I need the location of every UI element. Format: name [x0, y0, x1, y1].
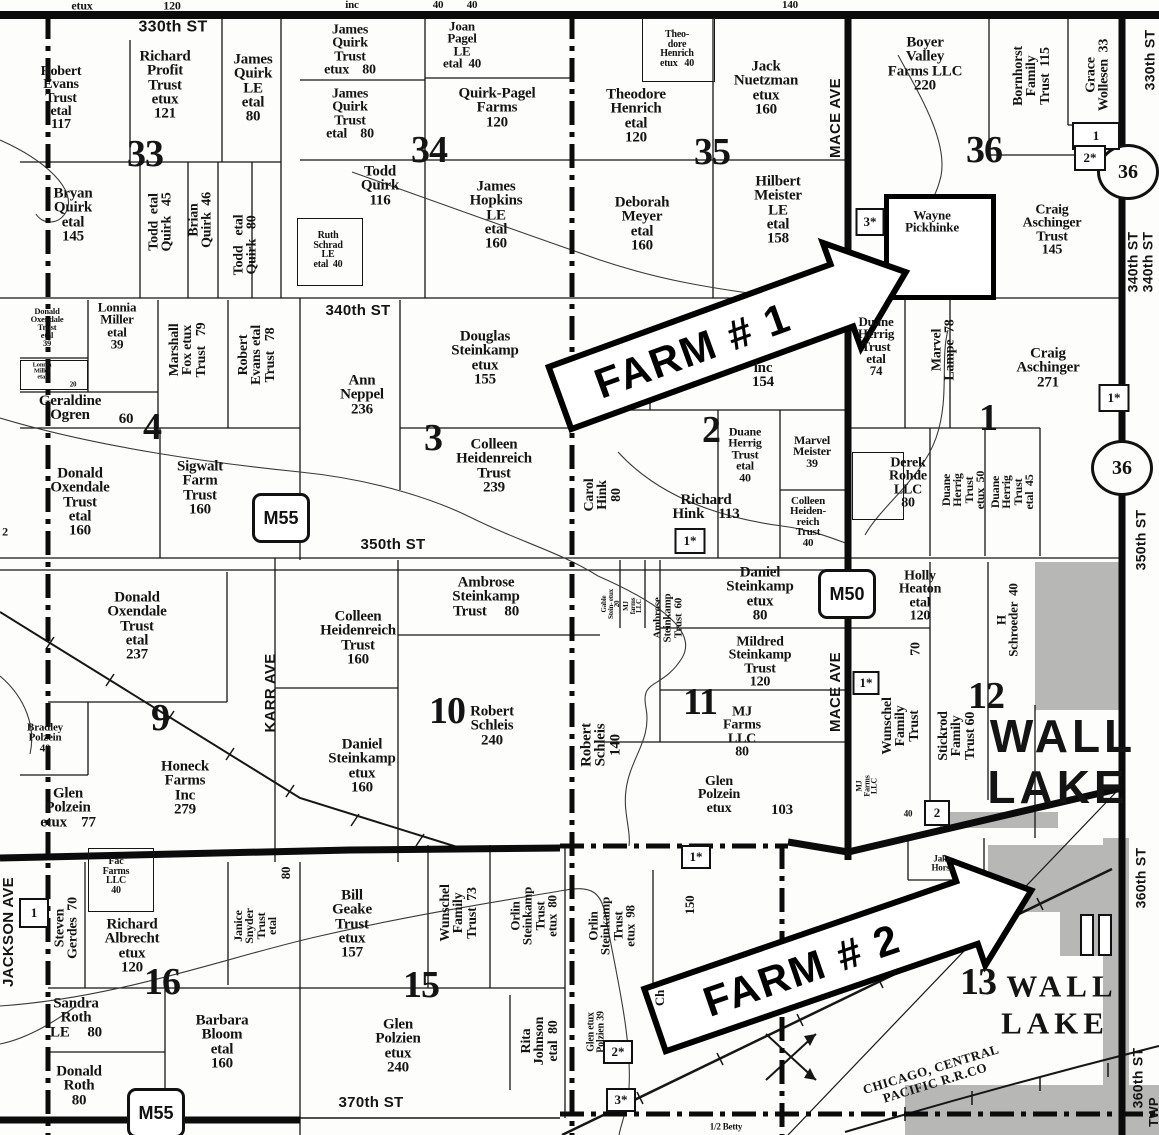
parcel-label: Hilbert Meister LE etal 158	[754, 174, 802, 245]
section-number: 11	[683, 684, 717, 720]
parcel-label: inc 154	[752, 361, 774, 390]
building-icon	[1080, 914, 1112, 956]
parcel-label: Daniel Steinkamp etux 160	[328, 738, 395, 795]
parcel-label-vertical: Duane Herrig Trust etal 45	[990, 474, 1036, 509]
parcel-label: James Hopkins LE etal 160	[470, 179, 523, 250]
parcel-label-vertical: MJ Farms LLC	[856, 775, 879, 796]
reference-flag-box: 3*	[606, 1088, 636, 1112]
parcel-label-vertical: Wunschel Family Trust 73	[439, 884, 479, 941]
parcel-label-vertical: Grace Wollesen 33	[1085, 39, 1112, 111]
town-label-wall-lake: LAKE	[987, 766, 1128, 810]
parcel-label: Colleen Heidenreich Trust 239	[456, 438, 532, 495]
parcel-label-vertical: Rita Johnson etal 80	[520, 1017, 560, 1065]
parcel-label: 40	[904, 810, 913, 819]
road-label: 350th ST	[361, 538, 426, 552]
parcel-label: 103	[771, 803, 793, 817]
road-label-vertical: JACKSON AVE	[2, 877, 16, 987]
highway-route-box: M50	[818, 569, 876, 619]
parcel-label: Marvel Meister 39	[793, 435, 831, 469]
parcel-label: Holly Heaton etal 120	[899, 569, 941, 622]
section-number: 9	[151, 700, 169, 736]
parcel-label: Bradley Polzein 40	[27, 722, 63, 753]
town-area-wall-lake	[940, 812, 1058, 828]
parcel-label: Deborah Meyer etal 160	[615, 196, 669, 253]
section-number: 36	[966, 132, 1002, 168]
parcel-label-vertical: Todd etal Quirk 80	[233, 215, 260, 276]
section-number: 3	[424, 420, 442, 456]
parcel-label-vertical: Steven Gerdes 70	[54, 897, 81, 959]
town-area-wall-lake	[905, 1085, 1159, 1135]
parcel-label-vertical: Marshall Fox etux Trust 79	[168, 323, 208, 378]
parcel-label: Colleen Heidenreich Trust 160	[320, 610, 396, 667]
parcel-label: Sandra Roth LE 80	[50, 997, 102, 1040]
parcel-label: Wayne Pickhinke	[905, 210, 959, 235]
section-number: 35	[694, 134, 730, 170]
edge-text-fragment: 140	[782, 0, 798, 10]
parcel-label: Douglas Steinkamp etux 155	[451, 330, 518, 387]
parcel-label: Ruth Schrad LE etal 40	[313, 231, 342, 269]
parcel-label: Bill Geake Trust etux 157	[332, 888, 372, 959]
building-bar	[1098, 914, 1112, 956]
parcel-label: Ambrose Steinkamp Trust 80	[452, 576, 519, 619]
parcel-label: Boyer Valley Farms LLC 220	[888, 36, 962, 93]
road-label-vertical: 340th ST	[1126, 232, 1139, 293]
parcel-label: Jack Nuetzman etux 160	[734, 60, 798, 117]
parcel-label-vertical: Stickrod Family Trust 60	[937, 711, 977, 761]
reference-flag-box: 1*	[675, 528, 706, 554]
road-label: 330th ST	[138, 19, 207, 34]
parcel-label: Donald Oxendale Trust etal 237	[107, 590, 166, 661]
highway-route-circle: 36	[1097, 144, 1159, 200]
parcel-label: Donald Roth 80	[56, 1065, 102, 1108]
parcel-label-vertical: Orlin Steinkamp Trust etux 80	[509, 887, 558, 945]
parcel-label-vertical: H Schroeder 40	[996, 583, 1021, 656]
parcel-label: MJ Farms LLC 80	[723, 705, 761, 758]
section-number: 13	[960, 964, 996, 1000]
section-number: 4	[143, 409, 161, 445]
parcel-label: Glen Polzein etux	[698, 775, 740, 815]
edge-text-fragment: inc	[345, 0, 358, 10]
road-label-vertical: 340th ST	[1141, 232, 1154, 293]
section-number: 34	[411, 132, 447, 168]
parcel-label: Quirk-Pagel Farms 120	[459, 87, 536, 130]
parcel-label: James Quirk Trust etux 80	[324, 23, 376, 76]
parcel-label-vertical: Janice Snyder Trust etal	[233, 908, 279, 943]
section-number: 12	[968, 678, 1004, 714]
reference-flag-box: 2*	[603, 1040, 633, 1064]
reference-flag-box: 2*	[1074, 145, 1106, 171]
parcel-label-vertical: Marvel Lampe 78	[931, 319, 958, 380]
farm-arrow-label: FARM # 1	[588, 293, 797, 407]
parcel-label-vertical: Ch	[654, 990, 666, 1006]
road-label-vertical: MACE AVE	[829, 652, 843, 732]
parcel-label: James Quirk LE etal 80	[234, 52, 273, 123]
parcel-label: Duane Herrig Trust etal 74	[858, 316, 894, 378]
parcel-label: 1/2 Betty	[710, 1123, 742, 1132]
parcel-label: Lonnia Miller etal	[33, 363, 52, 382]
parcel-label-vertical: Bornhorst Family Trust 115	[1012, 46, 1052, 106]
parcel-label-vertical: MJ farms LLC	[623, 598, 643, 615]
parcel-label-vertical: Orlin Steinkamp Trust etux 98	[587, 897, 636, 955]
section-number: 33	[127, 136, 163, 172]
road-label-vertical: 330th ST	[1143, 30, 1156, 91]
town-label-wall-lake: WALL	[1006, 971, 1117, 1000]
parcel-label-vertical: Wunschel Family Trust	[881, 697, 921, 754]
parcel-label: Bryan Quirk etal 145	[53, 187, 92, 244]
parcel-label-vertical: 70	[909, 642, 922, 656]
parcel-label: Colleen Heiden- reich Trust 40	[790, 496, 826, 548]
parcel-label: Daniel Steinkamp etux 80	[726, 566, 793, 623]
parcel-label: Theodore Henrich etal 120	[606, 88, 666, 145]
parcel-label: Glen Polzien etux 240	[375, 1018, 420, 1075]
reference-flag-box: 1	[19, 898, 49, 928]
parcel-label: Ann Neppel 236	[340, 374, 384, 417]
parcel-label-vertical: Ambrose Steinkamp Trust 60	[652, 594, 683, 643]
road-label-vertical: TWP	[1148, 1097, 1159, 1127]
reference-flag-box: 2	[924, 800, 950, 826]
parcel-label-vertical: Robert Schleis 140	[580, 723, 623, 767]
parcel-label: Honeck Farms Inc 279	[161, 760, 209, 817]
farm-arrow-label: FARM # 2	[697, 914, 906, 1025]
reference-flag-box: 1*	[681, 845, 711, 869]
parcel-label: Richard Hink 113	[673, 493, 740, 522]
parcel-label-vertical: Duane Herrig Trust etux 50	[941, 471, 987, 509]
parcel-label-vertical: Carol Hink 80	[583, 479, 623, 512]
parcel-label-vertical: 150	[684, 896, 696, 915]
section-number: 1	[979, 400, 997, 436]
parcel-label: Mildred Steinkamp Trust 120	[729, 635, 792, 688]
parcel-label: Sigwalt Farm Trust 160	[177, 460, 223, 517]
section-number: 15	[403, 967, 439, 1003]
parcel-label: Duane Herrig Trust etal 40	[728, 427, 761, 484]
parcel-label-vertical: 80	[280, 867, 292, 880]
road-label-vertical: KARR AVE	[264, 653, 278, 732]
parcel-label-vertical: Todd etal Quirk 45	[148, 192, 175, 251]
parcel-outline	[20, 360, 88, 390]
plat-map: FARM # 1FARM # 2 Robert Evans Trust etal…	[0, 0, 1159, 1135]
parcel-label: Craig Aschinger Trust 145	[1023, 203, 1082, 256]
building-bar	[1080, 914, 1094, 956]
parcel-label: Derek Rohde LLC 80	[889, 456, 927, 509]
parcel-label: 60	[119, 412, 134, 426]
highway-route-box: M55	[252, 493, 310, 543]
town-label-wall-lake: LAKE	[1001, 1008, 1109, 1037]
highway-route-box: M55	[127, 1088, 185, 1135]
parcel-label: Joan Pagel LE etal 40	[443, 20, 481, 69]
highway-route-circle: 36	[1091, 440, 1153, 496]
parcel-label: 20	[70, 382, 77, 389]
parcel-label: Jake Horst	[932, 854, 953, 871]
parcel-label: Craig Aschinger 271	[1016, 347, 1079, 390]
road-label-vertical: 360th ST	[1134, 848, 1147, 909]
road-label-vertical: 360th ST	[1131, 1048, 1144, 1109]
section-number: 2	[702, 412, 720, 448]
edge-text-fragment: 120	[163, 0, 180, 11]
parcel-label-vertical: Brian Quirk 46	[188, 192, 215, 248]
parcel-label: Robert Schleis 240	[470, 705, 514, 748]
parcel-label: Richard Profit Trust etux 121	[139, 49, 190, 120]
road-label-vertical: 350th ST	[1134, 510, 1147, 571]
town-label-wall-lake: WALL	[990, 715, 1136, 759]
parcel-label: Lonnia Miller etal 39	[98, 301, 137, 350]
parcel-label-vertical: Robert Evans etal Trust 78	[237, 325, 277, 385]
reference-flag-box: 3*	[856, 208, 885, 236]
parcel-label: Theo- dore Henrich etux 40	[660, 30, 694, 68]
parcel-label: Robert Evans Trust etal 117	[41, 65, 82, 131]
parcel-label: James Quirk Trust etal 80	[326, 87, 374, 140]
parcel-label: Donald Oxendale Trust etal 39	[31, 307, 64, 347]
section-number: 10	[429, 693, 465, 729]
section-number: 16	[144, 964, 180, 1000]
edge-text-fragment: etux	[71, 0, 92, 11]
parcel-label: Geraldine Ogren	[39, 394, 101, 423]
edge-text-fragment: 40	[433, 0, 444, 10]
reference-flag-box: 1*	[1099, 384, 1130, 412]
road-label: 340th ST	[326, 304, 391, 318]
parcel-label: Todd Quirk 116	[361, 165, 399, 208]
parcel-label-vertical: Gable Stein- etux 20	[601, 589, 621, 619]
parcel-label: Barbara Bloom etal 160	[196, 1014, 249, 1071]
reference-flag-box: 1*	[853, 671, 880, 695]
town-area-wall-lake	[988, 845, 1110, 912]
edge-text-fragment: 2	[2, 526, 8, 537]
parcel-label: Fac Farms LLC 40	[103, 857, 130, 895]
edge-text-fragment: 40	[467, 0, 478, 10]
road-label-vertical: MACE AVE	[829, 78, 843, 158]
parcel-label: Donald Oxendale Trust etal 160	[50, 466, 109, 537]
parcel-label: Glen Polzein etux 77	[40, 787, 96, 830]
road-label: 370th ST	[339, 1096, 404, 1110]
town-area-wall-lake	[1035, 562, 1122, 710]
